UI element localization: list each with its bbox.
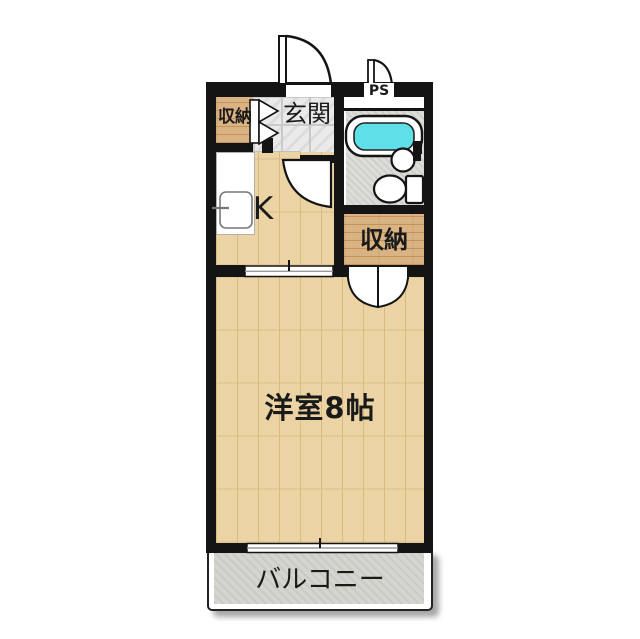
pipe-space-label: PS	[364, 83, 394, 99]
wall-closet-tl-bottom	[206, 143, 253, 152]
wall-left	[206, 82, 216, 553]
kitchen-label: K	[247, 191, 279, 227]
floor-plan: 収納 玄関 K PS 収納 洋室8帖 バルコニー	[0, 0, 640, 639]
balcony-label: バルコニー	[238, 565, 402, 595]
wall-divider-right	[408, 265, 424, 277]
wall-bathroom-bottom	[334, 205, 433, 214]
bathroom-floor	[346, 111, 424, 205]
wall-divider-left	[206, 265, 245, 277]
closet-top-left-label: 収納	[213, 106, 257, 128]
entrance-door-opening	[286, 85, 331, 97]
entrance-door	[279, 36, 331, 84]
wall-divider-mid	[333, 265, 348, 277]
main-room-label: 洋室8帖	[230, 390, 410, 426]
wall-right	[424, 82, 433, 553]
wall-washroom-door-header	[300, 155, 344, 163]
wall-bottom	[206, 543, 433, 553]
wall-entrance-stub	[262, 138, 273, 153]
entrance-label: 玄関	[276, 100, 338, 128]
closet-right-label: 収納	[346, 226, 422, 254]
